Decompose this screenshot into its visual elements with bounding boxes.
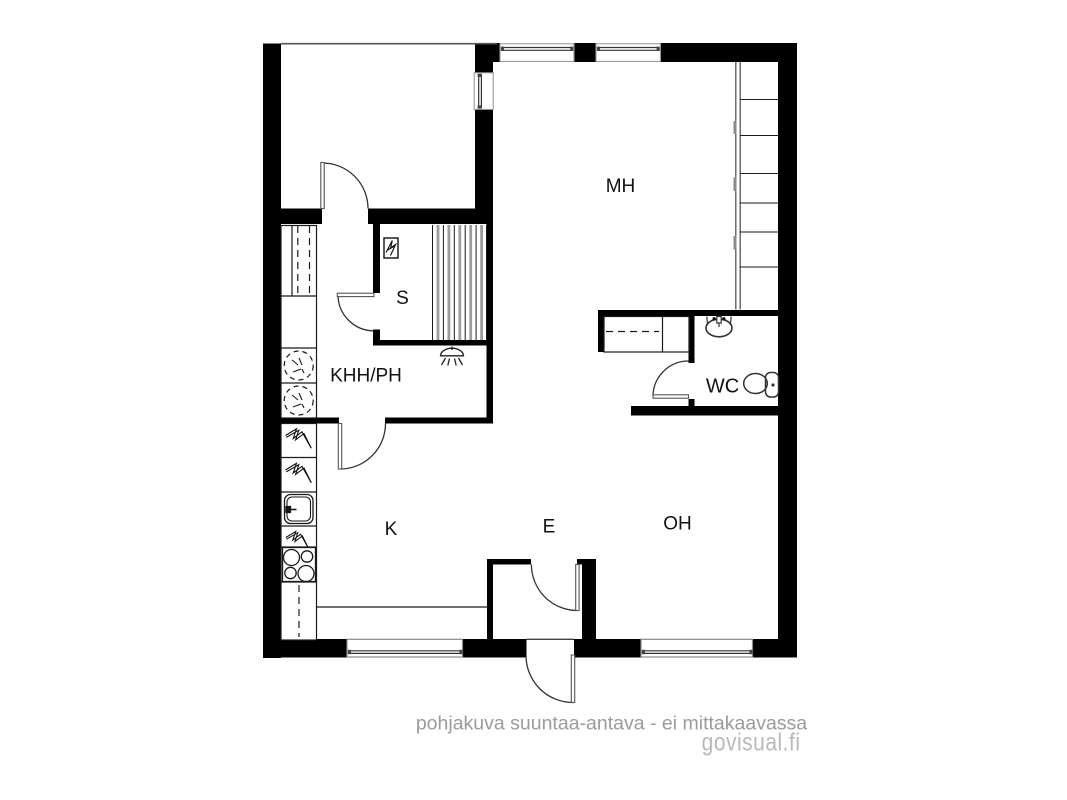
svg-text:K: K [385, 519, 398, 540]
svg-text:govisual.fi: govisual.fi [702, 728, 801, 756]
svg-text:S: S [396, 288, 409, 309]
svg-text:MH: MH [606, 176, 636, 197]
svg-text:E: E [543, 517, 556, 538]
svg-text:WC: WC [706, 376, 739, 398]
svg-text:KHH/PH: KHH/PH [330, 366, 402, 387]
svg-text:OH: OH [663, 514, 692, 535]
